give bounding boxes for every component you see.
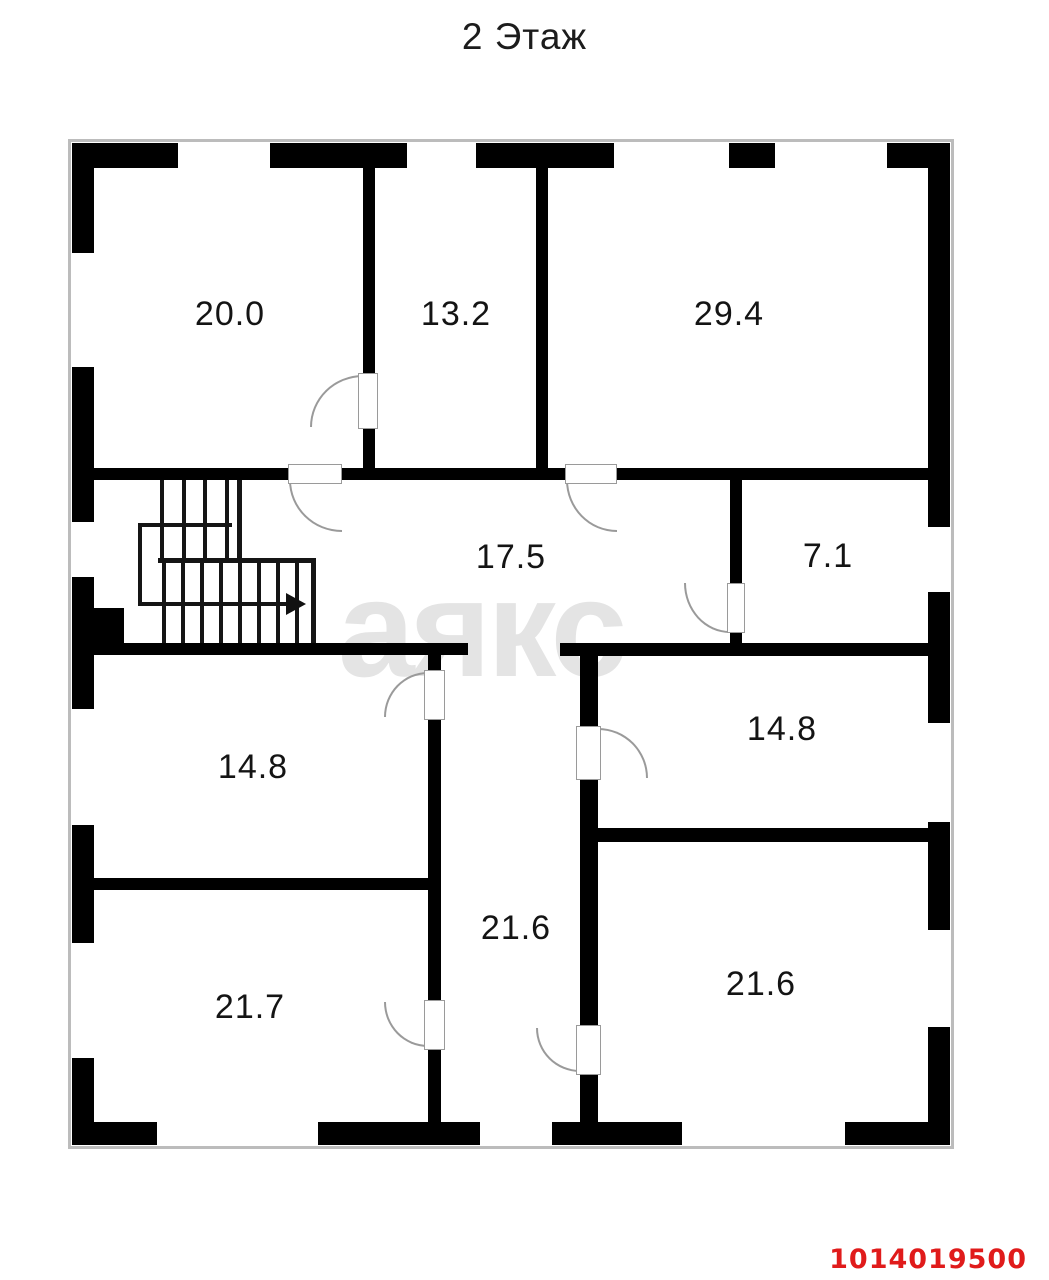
wall-segment (428, 718, 441, 1002)
door-leaf (565, 464, 617, 484)
stair-tread (311, 562, 316, 643)
wall-segment (94, 608, 124, 643)
wall-segment (94, 643, 468, 655)
door-leaf (424, 670, 445, 720)
stair-tread (237, 480, 242, 560)
floor-plan-drawing (0, 0, 1049, 1280)
door-swing-arc (536, 1028, 580, 1072)
stair-tread (182, 480, 186, 560)
door-leaf (424, 1000, 445, 1050)
wall-segment (72, 1122, 157, 1145)
room-label-21-6-center: 21.6 (454, 909, 578, 948)
wall-segment (428, 1048, 441, 1122)
stair-tread (203, 480, 207, 560)
door-swing-arc (566, 480, 617, 532)
room-label-7-1: 7.1 (766, 537, 890, 576)
door-swing-arc (598, 728, 648, 778)
window (178, 144, 270, 168)
wall-segment (318, 1122, 480, 1145)
wall-segment (928, 143, 950, 527)
floor-plan-page: 2 Этаж аякс 20.0 13.2 29.4 17.5 7.1 14.8… (0, 0, 1049, 1280)
door-leaf (727, 583, 745, 633)
wall-segment (552, 1122, 682, 1145)
wall-segment (928, 822, 950, 930)
listing-id: 1014019500 (829, 1244, 1027, 1275)
room-label-14-8-left: 14.8 (191, 748, 315, 787)
stair-walk-line (138, 602, 290, 606)
wall-segment (363, 427, 375, 468)
wall-segment (617, 468, 928, 480)
door-leaf (288, 464, 342, 484)
stair-tread (160, 480, 164, 560)
stair-walk-line (138, 523, 142, 606)
wall-segment (928, 592, 950, 723)
room-label-20-0: 20.0 (168, 295, 292, 334)
wall-segment (72, 367, 94, 522)
room-label-21-7: 21.7 (188, 988, 312, 1027)
wall-segment (94, 878, 441, 890)
window (928, 527, 949, 592)
stair-flight-divider (158, 558, 316, 563)
wall-segment (270, 143, 407, 168)
door-swing-arc (384, 1002, 428, 1047)
window (157, 1122, 318, 1144)
stair-walk-line (138, 523, 232, 527)
window (775, 144, 887, 168)
room-label-21-6-right: 21.6 (699, 965, 823, 1004)
wall-segment (730, 480, 742, 583)
wall-segment (536, 168, 548, 468)
window (73, 943, 94, 1058)
window (682, 1122, 845, 1144)
room-label-17-5: 17.5 (449, 538, 573, 577)
door-swing-arc (384, 672, 428, 717)
wall-segment (72, 143, 94, 253)
wall-segment (560, 643, 928, 656)
window (614, 144, 729, 168)
room-label-13-2: 13.2 (394, 295, 518, 334)
window (407, 144, 476, 168)
wall-segment (845, 1122, 950, 1145)
door-leaf (576, 1025, 601, 1075)
window (928, 723, 949, 822)
window (73, 709, 94, 825)
wall-segment (72, 825, 94, 943)
wall-segment (580, 778, 598, 1027)
stair-direction-arrow-icon (286, 593, 306, 615)
door-swing-arc (289, 480, 342, 532)
wall-segment (72, 577, 94, 709)
wall-segment (476, 143, 614, 168)
wall-segment (363, 168, 375, 375)
wall-segment (730, 633, 742, 643)
wall-segment (428, 643, 441, 672)
wall-segment (580, 1075, 598, 1122)
window (73, 522, 94, 577)
door-swing-arc (310, 375, 363, 427)
window (73, 253, 94, 367)
wall-segment (598, 828, 928, 842)
door-leaf (358, 373, 378, 429)
room-label-14-8-right: 14.8 (720, 710, 844, 749)
wall-segment (94, 468, 288, 480)
door-leaf (576, 726, 601, 780)
stair-tread (225, 480, 229, 560)
door-swing-arc (684, 583, 730, 633)
room-label-29-4: 29.4 (667, 295, 791, 334)
wall-segment (729, 143, 775, 168)
window (928, 930, 949, 1027)
wall-segment (580, 643, 598, 728)
window (480, 1122, 552, 1144)
wall-segment (342, 468, 565, 480)
